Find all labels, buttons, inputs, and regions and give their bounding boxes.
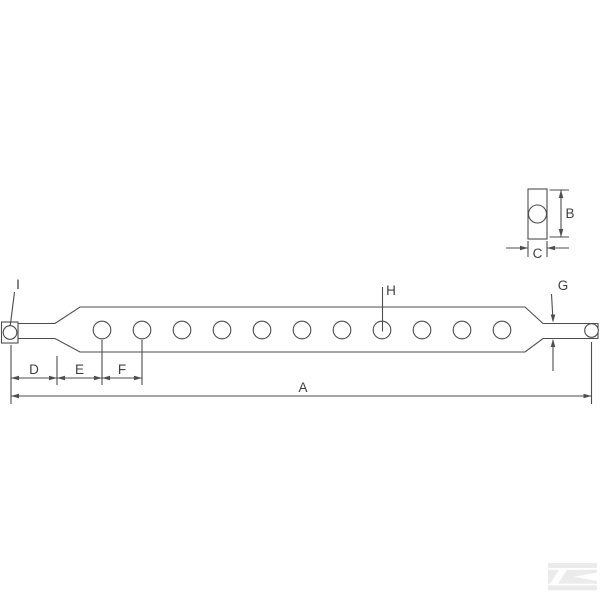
arrow-f-left [102,376,110,381]
label-i: I [16,277,20,292]
arrow-d-left [11,376,19,381]
watermark-bottom-bar [548,585,597,590]
right-end-hole [585,324,599,338]
label-e: E [75,362,84,377]
label-c: C [533,246,543,261]
dimension-labels: A B C D E F G H I [16,206,574,395]
label-g: G [558,278,569,293]
label-b: B [565,206,574,221]
bar-hole [453,321,471,339]
label-f: F [118,362,126,377]
bar-hole [493,321,511,339]
label-d: D [29,362,39,377]
arrow-b-up [559,190,564,198]
bar-hole [333,321,351,339]
bar-hole [253,321,271,339]
arrowheads [11,190,592,398]
kramp-k-logo-watermark [548,563,597,590]
label-a: A [298,380,307,395]
technical-drawing-canvas: A B C D E F G H I [0,0,600,600]
label-h: H [386,283,396,298]
arrow-a-right [584,394,592,399]
bar-hole [413,321,431,339]
arrow-g-up [551,339,556,347]
arrow-c-left [547,246,555,251]
arrow-c-right [520,246,528,251]
cross-section-hole [529,205,547,223]
bar-hole [293,321,311,339]
arrow-d-right [49,376,57,381]
arrow-b-down [559,229,564,237]
left-end-hole [3,326,17,340]
bar-hole [213,321,231,339]
leader-line-i [10,292,14,326]
arrow-a-left [11,394,19,399]
dimension-lines [10,190,591,404]
bar-hole [173,321,191,339]
arrow-e-right [94,376,102,381]
bar-hole [133,321,151,339]
arrow-g-down [551,315,556,323]
arrow-e-left [57,376,65,381]
arrow-f-right [134,376,142,381]
watermark-top-bar [548,563,597,568]
bar-hole [93,321,111,339]
part-outlines [2,189,599,352]
